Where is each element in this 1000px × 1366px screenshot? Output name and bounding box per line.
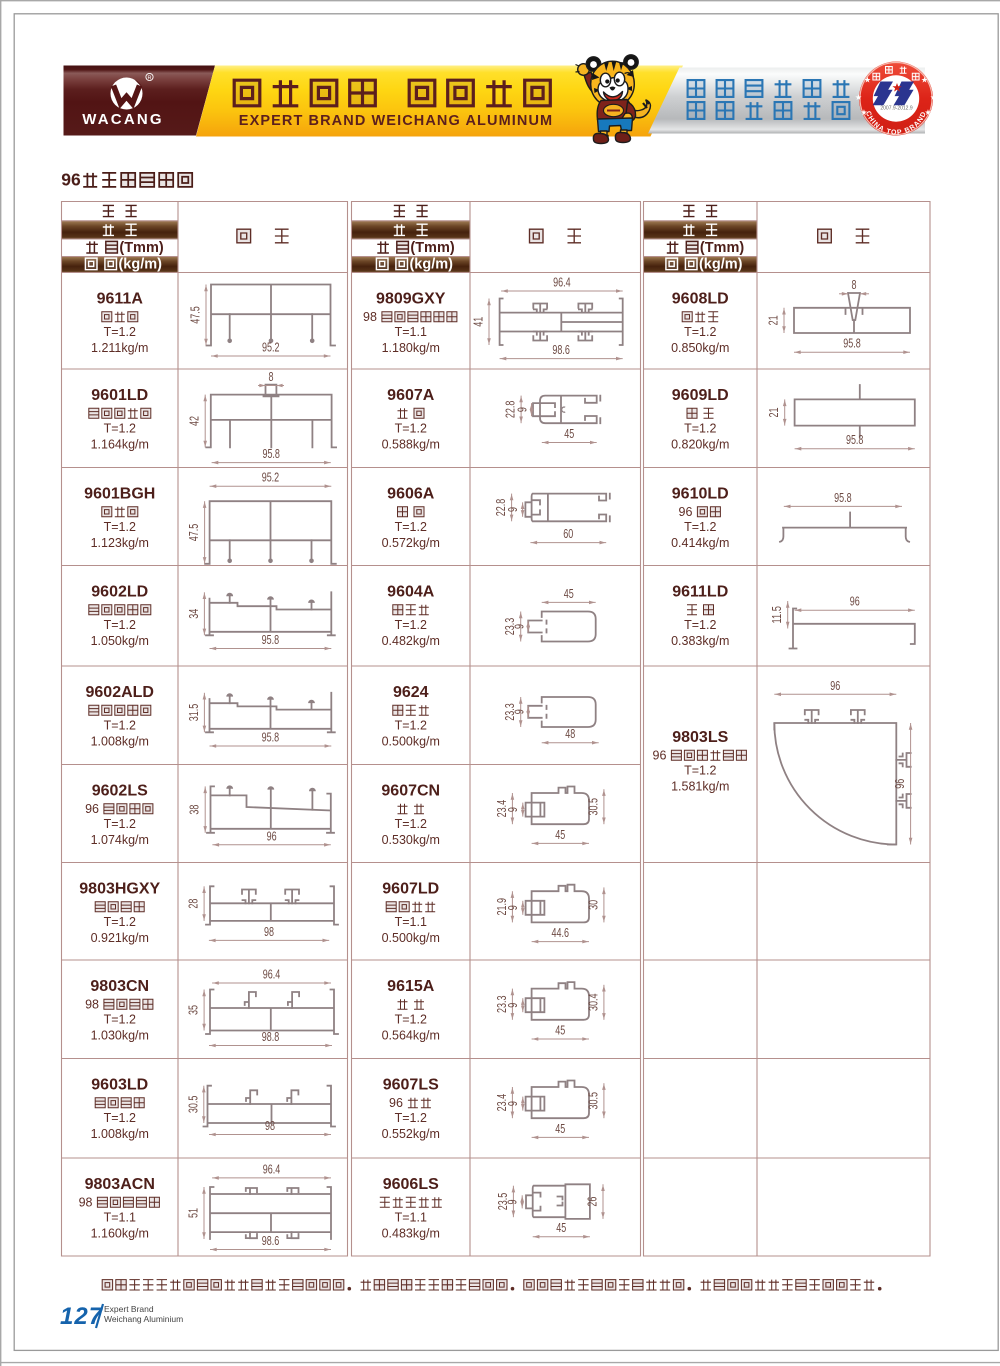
svg-text:T=1.2: T=1.2	[684, 520, 716, 534]
svg-text:47.5: 47.5	[187, 524, 201, 542]
svg-text:R: R	[148, 76, 152, 82]
svg-text:9: 9	[506, 905, 520, 910]
svg-text:★: ★	[924, 108, 931, 117]
svg-text:0.850kg/m: 0.850kg/m	[671, 341, 729, 355]
svg-text:28: 28	[187, 899, 201, 909]
svg-text:9601BGH: 9601BGH	[84, 486, 155, 503]
svg-text:9809GXY: 9809GXY	[376, 291, 446, 308]
svg-text:96: 96	[267, 829, 277, 843]
svg-text:T=1.2: T=1.2	[395, 1111, 427, 1125]
svg-text:9: 9	[513, 709, 527, 714]
svg-text:T=1.2: T=1.2	[395, 719, 427, 733]
svg-text:9602ALD: 9602ALD	[86, 684, 154, 701]
svg-text:9803CN: 9803CN	[90, 978, 149, 995]
svg-text:21: 21	[767, 315, 781, 325]
svg-text:Weichang Aluminium: Weichang Aluminium	[104, 1314, 183, 1324]
svg-text:31.5: 31.5	[187, 704, 201, 722]
svg-text:★: ★	[855, 93, 862, 102]
svg-text:1.164kg/m: 1.164kg/m	[91, 437, 149, 451]
svg-text:9604A: 9604A	[387, 584, 435, 601]
svg-text:96: 96	[85, 802, 99, 816]
svg-text:38: 38	[188, 805, 202, 815]
svg-text:T=1.1: T=1.1	[104, 1211, 136, 1225]
svg-text:9803HGXY: 9803HGXY	[79, 881, 160, 898]
svg-text:98: 98	[363, 310, 377, 324]
svg-text:30.5: 30.5	[186, 1096, 200, 1114]
svg-text:T=1.2: T=1.2	[104, 1111, 136, 1125]
svg-text:11.5: 11.5	[770, 606, 784, 624]
svg-text:T=1.2: T=1.2	[104, 719, 136, 733]
svg-text:0.530kg/m: 0.530kg/m	[382, 833, 440, 847]
svg-text:30.4: 30.4	[586, 994, 600, 1012]
svg-text:(kg/m): (kg/m)	[699, 257, 743, 273]
svg-text:9: 9	[506, 1101, 520, 1106]
svg-text:9611LD: 9611LD	[672, 584, 728, 601]
svg-text:1.180kg/m: 1.180kg/m	[382, 341, 440, 355]
svg-text:1.008kg/m: 1.008kg/m	[91, 734, 149, 748]
svg-text:(Tmm): (Tmm)	[700, 240, 744, 256]
svg-text:48: 48	[565, 727, 575, 741]
svg-text:9606A: 9606A	[387, 486, 435, 503]
svg-text:9602LS: 9602LS	[92, 783, 148, 800]
svg-text:96: 96	[389, 1096, 403, 1110]
svg-text:T=1.2: T=1.2	[395, 422, 427, 436]
svg-text:1.030kg/m: 1.030kg/m	[91, 1028, 149, 1042]
svg-text:98.6: 98.6	[552, 343, 570, 357]
svg-text:0.588kg/m: 0.588kg/m	[382, 437, 440, 451]
svg-text:9: 9	[513, 624, 527, 629]
svg-text:9607CN: 9607CN	[381, 783, 440, 800]
svg-text:9615A: 9615A	[387, 978, 435, 995]
svg-text:9603LD: 9603LD	[91, 1077, 148, 1094]
svg-text:44.6: 44.6	[552, 926, 570, 940]
svg-text:96: 96	[850, 595, 860, 609]
svg-text:0.500kg/m: 0.500kg/m	[382, 931, 440, 945]
svg-text:(kg/m): (kg/m)	[409, 257, 453, 273]
svg-text:1.008kg/m: 1.008kg/m	[91, 1127, 149, 1141]
svg-text:30: 30	[586, 900, 600, 910]
svg-text:0.483kg/m: 0.483kg/m	[382, 1226, 440, 1240]
svg-text:9606LS: 9606LS	[383, 1176, 439, 1193]
svg-text:8: 8	[852, 278, 857, 292]
svg-text:T=1.2: T=1.2	[684, 764, 716, 778]
svg-text:98.6: 98.6	[262, 1234, 280, 1248]
svg-text:T=1.2: T=1.2	[104, 325, 136, 339]
svg-text:(Tmm): (Tmm)	[410, 240, 454, 256]
svg-text:0.564kg/m: 0.564kg/m	[382, 1028, 440, 1042]
svg-text:96.4: 96.4	[553, 276, 571, 290]
svg-text:T=1.1: T=1.1	[395, 325, 427, 339]
svg-text:0.921kg/m: 0.921kg/m	[91, 931, 149, 945]
svg-text:34: 34	[187, 609, 201, 619]
svg-text:96: 96	[679, 505, 693, 519]
svg-text:96: 96	[653, 748, 667, 762]
svg-text:95.8: 95.8	[262, 633, 280, 647]
svg-text:9611A: 9611A	[97, 291, 144, 308]
svg-text:45: 45	[555, 828, 565, 842]
svg-text:42: 42	[188, 416, 202, 426]
svg-text:EXPERT BRAND WEICHANG ALUMINUM: EXPERT BRAND WEICHANG ALUMINUM	[239, 113, 553, 129]
svg-text:0.572kg/m: 0.572kg/m	[382, 536, 440, 550]
svg-text:35: 35	[187, 1005, 201, 1015]
svg-text:96.4: 96.4	[263, 1162, 281, 1176]
svg-text:T=1.2: T=1.2	[104, 817, 136, 831]
svg-text:41: 41	[472, 317, 486, 327]
svg-text:95.8: 95.8	[262, 447, 280, 461]
svg-text:51: 51	[187, 1208, 201, 1218]
svg-text:T=1.2: T=1.2	[104, 618, 136, 632]
svg-text:95.2: 95.2	[262, 341, 280, 355]
svg-text:95.8: 95.8	[262, 731, 280, 745]
svg-text:T=1.2: T=1.2	[395, 618, 427, 632]
svg-text:9: 9	[506, 1003, 520, 1008]
svg-text:9601LD: 9601LD	[91, 387, 148, 404]
svg-text:26: 26	[586, 1197, 600, 1207]
svg-text:★: ★	[860, 108, 867, 117]
svg-text:T=1.2: T=1.2	[104, 1013, 136, 1027]
svg-text:9624: 9624	[393, 684, 429, 701]
svg-text:T=1.2: T=1.2	[684, 325, 716, 339]
svg-text:9607A: 9607A	[387, 387, 435, 404]
svg-text:2007.9-2012.9: 2007.9-2012.9	[880, 106, 912, 112]
svg-text:0.383kg/m: 0.383kg/m	[671, 634, 729, 648]
svg-text:98: 98	[85, 997, 99, 1011]
svg-text:9610LD: 9610LD	[672, 486, 729, 503]
svg-text:95.8: 95.8	[846, 433, 864, 447]
svg-text:★: ★	[864, 76, 871, 85]
svg-text:T=1.2: T=1.2	[104, 915, 136, 929]
svg-text:96.4: 96.4	[263, 968, 281, 982]
svg-text:9: 9	[506, 1199, 520, 1204]
svg-text:T=1.2: T=1.2	[395, 520, 427, 534]
svg-text:(kg/m): (kg/m)	[118, 257, 162, 273]
svg-text:45: 45	[564, 427, 574, 441]
svg-text:9608LD: 9608LD	[672, 291, 729, 308]
svg-text:1.211kg/m: 1.211kg/m	[91, 341, 148, 355]
svg-text:1.123kg/m: 1.123kg/m	[91, 536, 149, 550]
svg-text:(Tmm): (Tmm)	[119, 240, 163, 256]
svg-text:60: 60	[563, 527, 573, 541]
svg-text:Expert Brand: Expert Brand	[104, 1304, 154, 1314]
svg-text:1.050kg/m: 1.050kg/m	[91, 634, 149, 648]
svg-text:9602LD: 9602LD	[91, 584, 148, 601]
svg-text:95.8: 95.8	[843, 337, 861, 351]
svg-text:9803LS: 9803LS	[672, 729, 728, 746]
svg-text:T=1.1: T=1.1	[395, 915, 427, 929]
svg-text:0.820kg/m: 0.820kg/m	[671, 437, 729, 451]
svg-text:WACANG: WACANG	[82, 111, 164, 128]
svg-text:9609LD: 9609LD	[672, 387, 729, 404]
svg-text:T=1.2: T=1.2	[395, 817, 427, 831]
svg-text:0.500kg/m: 0.500kg/m	[382, 734, 440, 748]
svg-text:45: 45	[556, 1221, 566, 1235]
svg-text:98: 98	[79, 1195, 93, 1209]
svg-text:8: 8	[269, 370, 274, 384]
svg-text:1.581kg/m: 1.581kg/m	[671, 779, 729, 793]
svg-text:98: 98	[264, 925, 274, 939]
svg-text:T=1.1: T=1.1	[395, 1211, 427, 1225]
svg-text:T=1.2: T=1.2	[684, 618, 716, 632]
svg-text:0.414kg/m: 0.414kg/m	[671, 536, 729, 550]
svg-text:1.074kg/m: 1.074kg/m	[91, 833, 149, 847]
svg-text:45: 45	[555, 1024, 565, 1038]
svg-text:98.8: 98.8	[262, 1030, 280, 1044]
svg-text:98: 98	[265, 1119, 275, 1133]
svg-text:★: ★	[930, 93, 937, 102]
svg-text:T=1.2: T=1.2	[104, 520, 136, 534]
svg-text:9: 9	[506, 807, 520, 812]
svg-text:30.5: 30.5	[586, 798, 600, 816]
svg-text:96: 96	[61, 170, 81, 190]
svg-text:0.482kg/m: 0.482kg/m	[382, 634, 440, 648]
svg-text:45: 45	[564, 587, 574, 601]
svg-text:9: 9	[506, 507, 520, 512]
svg-text:95.2: 95.2	[262, 471, 280, 485]
svg-text:0.552kg/m: 0.552kg/m	[382, 1127, 440, 1141]
svg-text:95.8: 95.8	[834, 491, 852, 505]
svg-text:T=1.2: T=1.2	[684, 422, 716, 436]
svg-text:1.160kg/m: 1.160kg/m	[91, 1226, 149, 1240]
svg-text:9607LS: 9607LS	[383, 1077, 439, 1094]
svg-text:30.5: 30.5	[586, 1092, 600, 1110]
svg-text:9607LD: 9607LD	[382, 881, 439, 898]
svg-text:21: 21	[767, 407, 781, 417]
svg-text:96: 96	[830, 679, 840, 693]
svg-text:9: 9	[516, 407, 530, 412]
svg-text:9803ACN: 9803ACN	[85, 1176, 155, 1193]
svg-text:T=1.2: T=1.2	[395, 1013, 427, 1027]
svg-text:96: 96	[893, 779, 907, 789]
svg-text:47.5: 47.5	[189, 306, 203, 324]
svg-text:★: ★	[921, 76, 928, 85]
svg-text:45: 45	[555, 1122, 565, 1136]
svg-text:T=1.2: T=1.2	[104, 422, 136, 436]
